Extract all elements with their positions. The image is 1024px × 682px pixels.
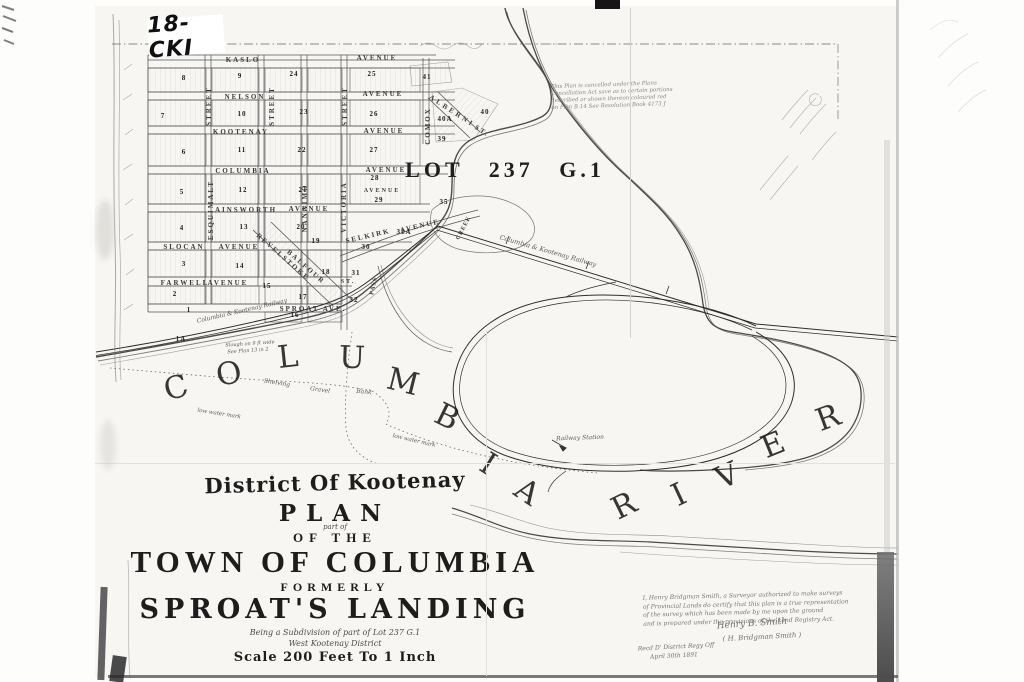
paper-crease-2 [486,330,487,676]
scan-edge-right-dark [877,552,894,682]
paper-crease-3 [95,463,895,464]
scan-edge-bottom [108,675,898,678]
archive-label: 18-CKI [147,14,225,57]
scan-blob-top [595,0,620,9]
paper-crease-1 [630,8,631,338]
scan-smudge-1 [96,200,114,260]
scan-edge-right-line [896,0,899,682]
creek [378,196,534,352]
certificate-note: I, Henry Bridgman Smith, a Surveyor auth… [643,589,850,628]
archive-label-text: 18-CKI [146,8,225,63]
station-arrow [552,440,566,451]
shoreline-east [523,8,864,471]
scan-edge-right-mid [884,140,890,555]
scan-smudge-2 [100,420,116,470]
cancellation-note: This Plan is cancelled under the PlansCa… [551,80,674,112]
low-water-lines [110,332,598,473]
scanned-map-page: KASLOAVENUENELSONAVENUEKOOTENAYAVENUECOL… [0,0,1024,682]
town-grid [148,55,455,330]
